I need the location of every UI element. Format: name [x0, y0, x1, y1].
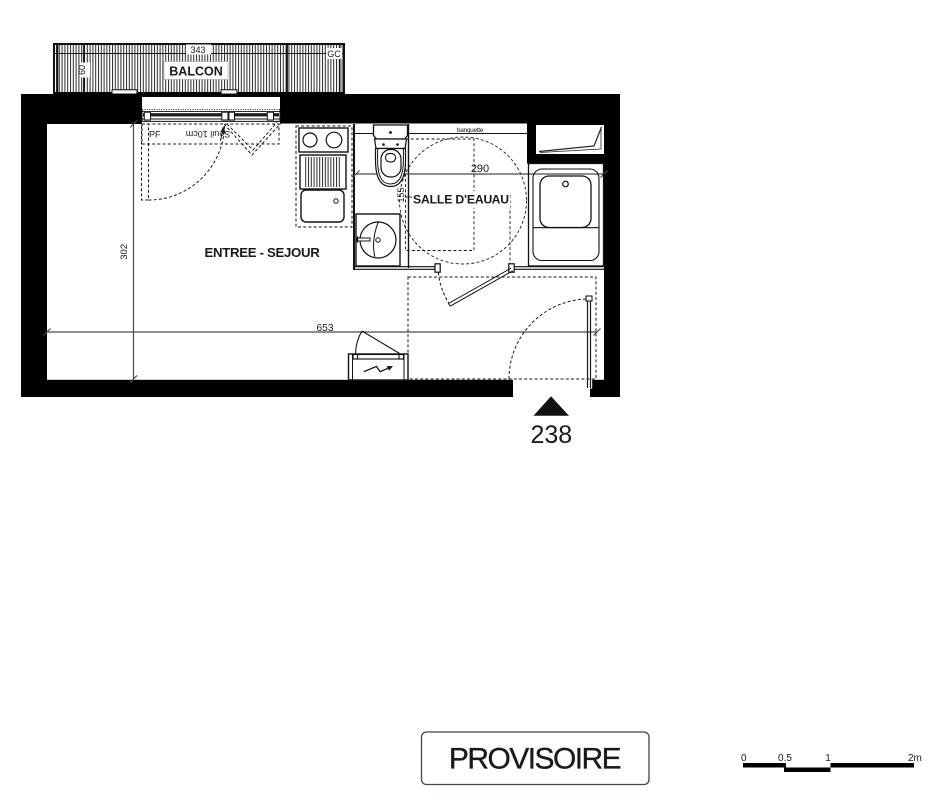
- svg-text:PF: PF: [149, 130, 161, 140]
- svg-text:60: 60: [77, 65, 87, 75]
- svg-text:343: 343: [190, 45, 205, 55]
- svg-text:banquette: banquette: [457, 127, 484, 134]
- svg-text:BALCON: BALCON: [169, 65, 222, 79]
- svg-text:155: 155: [396, 187, 406, 202]
- svg-text:2m: 2m: [908, 753, 922, 764]
- svg-text:0.5: 0.5: [778, 753, 792, 764]
- svg-text:302: 302: [119, 244, 130, 260]
- svg-text:GC: GC: [327, 49, 341, 59]
- svg-text:0: 0: [741, 753, 747, 764]
- svg-text:ENTREE - SEJOUR: ENTREE - SEJOUR: [205, 245, 321, 260]
- svg-text:653: 653: [317, 323, 334, 334]
- svg-text:238: 238: [530, 421, 572, 449]
- svg-text:1: 1: [825, 753, 831, 764]
- svg-text:PROVISOIRE: PROVISOIRE: [449, 743, 621, 776]
- svg-text:SALLE D'EAUAU: SALLE D'EAUAU: [413, 193, 509, 207]
